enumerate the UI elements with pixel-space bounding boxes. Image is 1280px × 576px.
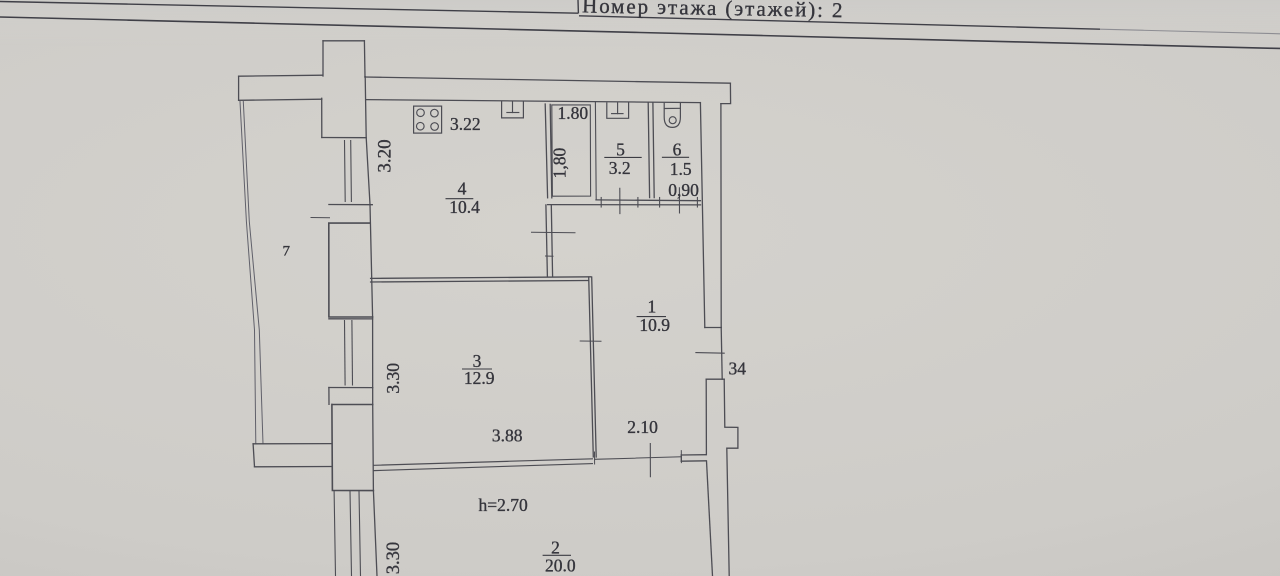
svg-text:4: 4: [458, 178, 467, 198]
svg-text:1: 1: [648, 297, 657, 317]
svg-text:20.0: 20.0: [545, 555, 576, 575]
svg-text:h=2.70: h=2.70: [479, 495, 528, 515]
svg-text:10.9: 10.9: [639, 315, 670, 335]
svg-text:1,80: 1,80: [550, 147, 570, 178]
svg-text:5: 5: [616, 140, 625, 160]
svg-text:3.22: 3.22: [450, 114, 481, 134]
svg-text:3.30: 3.30: [383, 363, 403, 394]
svg-text:3.20: 3.20: [375, 139, 396, 172]
svg-text:10.4: 10.4: [449, 197, 480, 217]
svg-text:7: 7: [283, 243, 291, 259]
svg-text:34: 34: [729, 358, 747, 378]
svg-text:0,90: 0,90: [668, 180, 699, 200]
svg-text:1.80: 1.80: [558, 103, 589, 123]
svg-text:3.30: 3.30: [384, 542, 404, 574]
svg-text:3.2: 3.2: [609, 158, 631, 178]
svg-text:6: 6: [673, 140, 682, 160]
svg-text:2.10: 2.10: [627, 417, 658, 437]
svg-text:12.9: 12.9: [464, 368, 495, 388]
svg-text:1.5: 1.5: [670, 159, 692, 179]
svg-text:3.88: 3.88: [492, 426, 523, 446]
